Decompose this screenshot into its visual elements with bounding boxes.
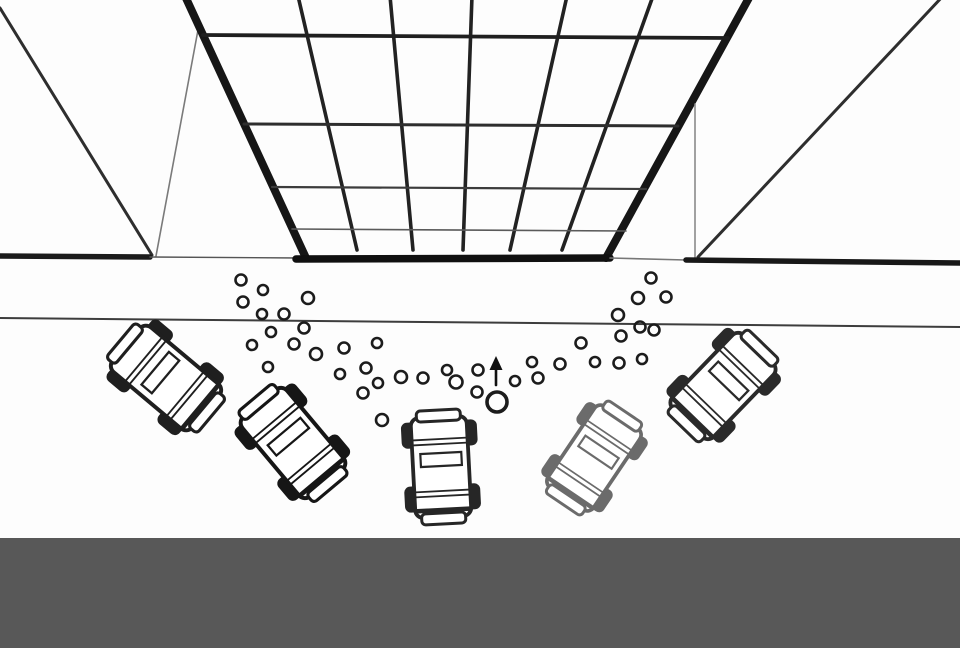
sketch-stage	[0, 0, 960, 648]
grid-base	[296, 258, 610, 259]
start-wall-left	[0, 256, 150, 257]
ceiling-crossbar-2	[244, 124, 678, 126]
car-front-bumper	[416, 409, 461, 422]
floor-band	[0, 538, 960, 648]
car-rear-bumper	[421, 512, 466, 525]
start-wall-right	[686, 260, 960, 263]
start-wall-gap-left	[150, 257, 300, 258]
car-3	[400, 408, 482, 526]
racing-start-sketch-scene	[0, 0, 960, 648]
car-rear-bumper-line	[417, 509, 469, 512]
